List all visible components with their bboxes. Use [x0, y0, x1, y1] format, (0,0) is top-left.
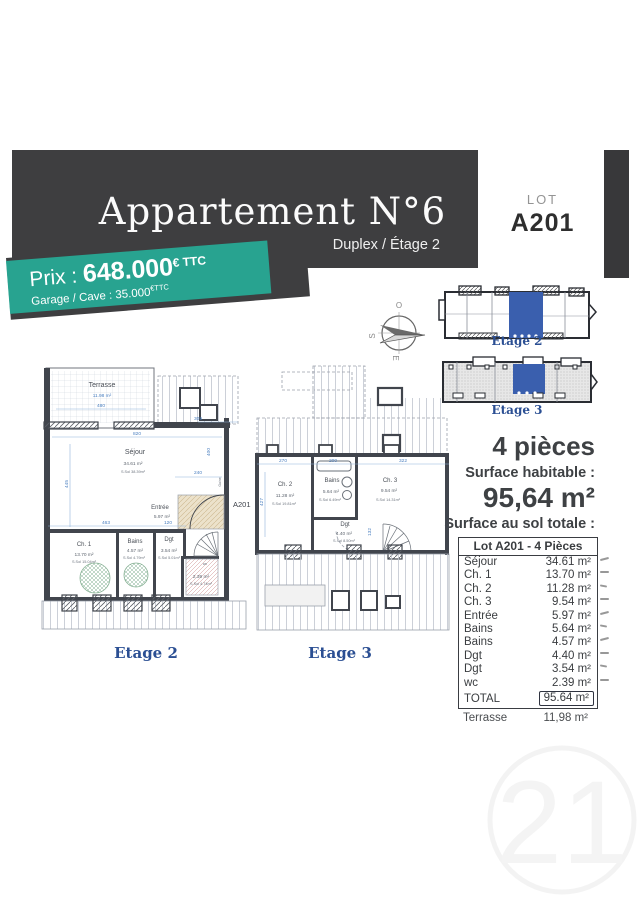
garage-suffix: €TTC [150, 282, 169, 292]
table-row: Ch. 113.70 m² [459, 569, 597, 582]
gaine-label: Gaine [218, 477, 222, 486]
pen-tick [600, 611, 609, 615]
siteplan3-graphics [443, 357, 597, 402]
terrasse-label: Terrasse [463, 712, 507, 724]
dim-132: 132 [367, 528, 373, 536]
price-label: Prix : [29, 264, 84, 291]
siteplan-etage3 [437, 356, 597, 408]
row-value: 2.39 m² [552, 677, 591, 690]
ch2-name: Ch. 2 [278, 482, 293, 488]
compass-south-label: S [368, 333, 377, 338]
wc-name: wc [203, 562, 208, 566]
ch1-ssol: S.Sol 15.04m² [72, 560, 97, 564]
row-value: 9.54 m² [552, 596, 591, 609]
entree-name: Entrée [151, 505, 169, 511]
bains-area: 5.64 m² [323, 489, 340, 495]
plan2-caption: Etage 2 [96, 644, 196, 662]
row-label: Dgt [464, 650, 482, 663]
row-label: Dgt [464, 663, 482, 676]
bains-area: 4.57 m² [127, 548, 144, 554]
terrasse-area: 11.98 m² [93, 393, 112, 399]
plan2-structure [42, 368, 246, 629]
terrasse-value: 11,98 m² [543, 712, 588, 724]
ch1-name: Ch. 1 [77, 542, 92, 548]
dim-322: 322 [399, 458, 407, 464]
total-value: 95.64 m² [539, 691, 594, 706]
lot-number: A201 [500, 209, 585, 238]
dgt-ssol: S.Sol 8.50m² [333, 539, 356, 543]
ch3-area: 9.54 m² [381, 488, 398, 494]
dgt-ssol: S.Sol 5.01m² [158, 556, 181, 560]
brochure-page: Appartement N°6 Duplex / Étage 2 Prix : … [0, 0, 640, 905]
wc-ssol: S.Sol 4.74m² [190, 582, 213, 586]
pen-tick [600, 679, 609, 681]
highlighted-unit [509, 292, 543, 338]
dgt-area: 4.40 m² [336, 531, 353, 537]
dgt-name: Dgt [340, 522, 350, 528]
table-row: Dgt4.40 m² [459, 650, 597, 663]
compass-needle-light [380, 335, 425, 343]
plan3-caption: Etage 3 [290, 644, 390, 662]
row-value: 3.54 m² [552, 663, 591, 676]
bains-name: Bains [127, 539, 142, 545]
dim-200: 200 [329, 458, 337, 464]
price-suffix: € TTC [172, 253, 206, 270]
compass-west-label: O [396, 301, 402, 310]
dgt-name: Dgt [164, 537, 174, 543]
row-value: 11.28 m² [546, 583, 591, 596]
floorplan-etage3: 270 200 322 427 132 Ch. 2 11.28 m² S.Sol… [255, 362, 455, 638]
row-label: Bains [464, 636, 493, 649]
highlighted-unit [513, 364, 545, 394]
row-value: 13.70 m² [546, 569, 591, 582]
floorplan-etage2: Terrasse 11.98 m² 480 309 820 445 240 40… [40, 362, 252, 638]
apartment-title: Appartement N°6 [12, 150, 478, 233]
row-label: Entrée [464, 610, 498, 623]
lot-block: LOT A201 [500, 192, 585, 238]
pen-tick [600, 624, 607, 627]
table-row: Bains4.57 m² [459, 636, 597, 649]
table-row: Dgt3.54 m² [459, 663, 597, 676]
table-row: Bains5.64 m² [459, 623, 597, 636]
agency-watermark: 21 [480, 735, 640, 905]
compass-rose: O S E [365, 295, 440, 370]
ch1-area: 13.70 m² [75, 552, 94, 558]
dim-820: 820 [133, 431, 141, 437]
table-row: Entrée5.97 m² [459, 610, 597, 623]
pen-tick [600, 584, 607, 587]
total-label: TOTAL [464, 693, 500, 705]
table-row: Ch. 39.54 m² [459, 596, 597, 609]
wc-area: 2.39 m² [193, 574, 210, 580]
row-value: 4.57 m² [552, 636, 591, 649]
terrasse-row: Terrasse 11,98 m² [458, 712, 596, 724]
row-label: Bains [464, 623, 493, 636]
bains-name: Bains [324, 478, 339, 484]
row-value: 34.61 m² [546, 556, 591, 569]
pen-tick [600, 652, 609, 654]
dgt-area: 3.54 m² [161, 548, 178, 554]
compass-needle-dark [380, 325, 425, 335]
siteplan3-caption: Etage 3 [472, 403, 562, 417]
accent-bar [604, 150, 629, 278]
pen-tick [600, 637, 609, 641]
siteplan2-graphics [439, 286, 596, 339]
entree-area: 5.97 m² [154, 514, 171, 520]
compass-east-label: E [391, 355, 400, 360]
pen-tick [600, 598, 609, 600]
row-value: 4.40 m² [552, 650, 591, 663]
ch2-ssol: S.Sol 19.81m² [272, 502, 297, 506]
dim-427: 427 [259, 498, 265, 506]
row-value: 5.97 m² [552, 610, 591, 623]
ch3-name: Ch. 3 [383, 478, 398, 484]
dim-463: 463 [102, 520, 110, 526]
dim-240: 240 [194, 470, 202, 476]
sejour-ssol: S.Sol 38.39m² [121, 470, 146, 474]
row-label: Ch. 3 [464, 596, 492, 609]
compass-graphics [378, 312, 425, 354]
unit-ref-label: A201 [233, 500, 251, 509]
dim-445: 445 [64, 480, 70, 488]
pen-tick [600, 557, 609, 561]
dim-120: 120 [164, 520, 172, 526]
row-label: Ch. 2 [464, 583, 492, 596]
apartment-subtitle: Duplex / Étage 2 [333, 237, 440, 253]
dim-309: 309 [194, 416, 202, 422]
pen-tick [600, 571, 609, 573]
row-label: wc [464, 677, 478, 690]
table-row: wc2.39 m² [459, 677, 597, 690]
spiral-stair [194, 532, 218, 556]
table-row: Ch. 211.28 m² [459, 583, 597, 596]
row-value: 5.64 m² [552, 623, 591, 636]
sejour-area: 34.61 m² [124, 461, 143, 467]
pen-tick-marks [600, 558, 609, 692]
terrasse-name: Terrasse [89, 382, 116, 389]
table-row: Séjour34.61 m² [459, 556, 597, 569]
dim-480: 480 [97, 403, 105, 409]
ch3-ssol: S.Sol 14.31m² [376, 498, 401, 502]
dim-400: 400 [206, 448, 212, 456]
lot-label: LOT [500, 192, 585, 207]
dim-270: 270 [279, 458, 287, 464]
row-label: Ch. 1 [464, 569, 492, 582]
pen-tick [600, 665, 607, 668]
areas-table-title: Lot A201 - 4 Pièces [459, 538, 597, 556]
sejour-name: Séjour [125, 449, 146, 456]
table-total-row: TOTAL95.64 m² [459, 690, 597, 708]
ch2-area: 11.28 m² [276, 493, 295, 499]
siteplan2-caption: Etage 2 [472, 334, 562, 348]
areas-table: Lot A201 - 4 Pièces Séjour34.61 m² Ch. 1… [458, 537, 598, 709]
bains-ssol: S.Sol 4.79m² [123, 556, 146, 560]
row-label: Séjour [464, 556, 497, 569]
bains-ssol: S.Sol 6.49m² [319, 498, 342, 502]
watermark-number: 21 [496, 757, 627, 889]
